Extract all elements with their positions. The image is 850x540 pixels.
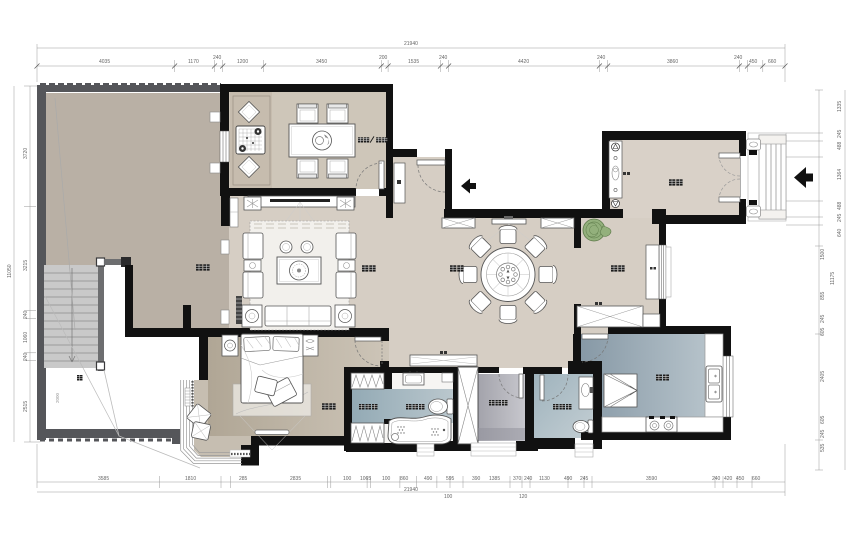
svg-text:1364: 1364 (837, 169, 843, 180)
svg-text:100: 100 (444, 494, 453, 500)
svg-text:1500: 1500 (820, 249, 826, 260)
svg-text:860: 860 (400, 476, 409, 482)
svg-text:240: 240 (439, 55, 448, 61)
svg-text:245: 245 (837, 213, 843, 222)
svg-text:595: 595 (446, 476, 455, 482)
svg-text:2000: 2000 (55, 392, 60, 403)
svg-text:240: 240 (213, 55, 222, 61)
svg-text:855: 855 (820, 291, 826, 300)
svg-text:21940: 21940 (404, 41, 418, 47)
svg-text:535: 535 (820, 443, 826, 452)
svg-text:390: 390 (472, 476, 481, 482)
svg-text:1130: 1130 (539, 476, 550, 482)
svg-text:1060: 1060 (23, 332, 29, 343)
svg-text:3590: 3590 (646, 476, 657, 482)
svg-text:4420: 4420 (518, 59, 529, 65)
svg-text:3860: 3860 (667, 59, 678, 65)
svg-text:200: 200 (379, 55, 388, 61)
svg-text:240: 240 (734, 55, 743, 61)
svg-text:11175: 11175 (830, 272, 836, 285)
svg-text:488: 488 (837, 201, 843, 210)
svg-text:21940: 21940 (404, 487, 418, 493)
svg-text:3720: 3720 (23, 148, 29, 159)
svg-text:240: 240 (712, 476, 721, 482)
svg-text:1810: 1810 (185, 476, 196, 482)
svg-text:2835: 2835 (290, 476, 301, 482)
svg-text:11050: 11050 (7, 264, 13, 278)
svg-text:1335: 1335 (837, 101, 843, 112)
svg-text:1065: 1065 (360, 476, 371, 482)
svg-text:420: 420 (724, 476, 733, 482)
svg-text:3585: 3585 (98, 476, 109, 482)
svg-text:1535: 1535 (408, 59, 419, 65)
svg-text:285: 285 (239, 476, 248, 482)
svg-text:240: 240 (597, 55, 606, 61)
svg-text:488: 488 (837, 141, 843, 150)
svg-text:245: 245 (580, 476, 589, 482)
svg-text:640: 640 (837, 228, 843, 237)
svg-text:605: 605 (820, 415, 826, 424)
svg-text:245: 245 (820, 314, 826, 323)
svg-text:100: 100 (343, 476, 352, 482)
svg-text:240: 240 (23, 310, 29, 319)
svg-text:3450: 3450 (316, 59, 327, 65)
svg-text:2515: 2515 (23, 401, 29, 412)
svg-text:605: 605 (820, 327, 826, 336)
svg-text:245: 245 (820, 429, 826, 438)
svg-text:1200: 1200 (237, 59, 248, 65)
svg-text:120: 120 (519, 494, 528, 500)
svg-text:660: 660 (768, 59, 777, 65)
svg-text:100: 100 (382, 476, 391, 482)
svg-text:4035: 4035 (99, 59, 110, 65)
svg-text:490: 490 (564, 476, 573, 482)
svg-text:2405: 2405 (820, 371, 826, 382)
svg-text:240: 240 (23, 352, 29, 361)
svg-text:450: 450 (749, 59, 758, 65)
svg-text:450: 450 (736, 476, 745, 482)
svg-text:370: 370 (513, 476, 522, 482)
svg-text:1385: 1385 (489, 476, 500, 482)
svg-text:1170: 1170 (188, 59, 199, 65)
svg-text:240: 240 (524, 476, 533, 482)
svg-text:3215: 3215 (23, 260, 29, 271)
svg-text:245: 245 (837, 129, 843, 138)
svg-text:490: 490 (424, 476, 433, 482)
svg-text:660: 660 (752, 476, 761, 482)
